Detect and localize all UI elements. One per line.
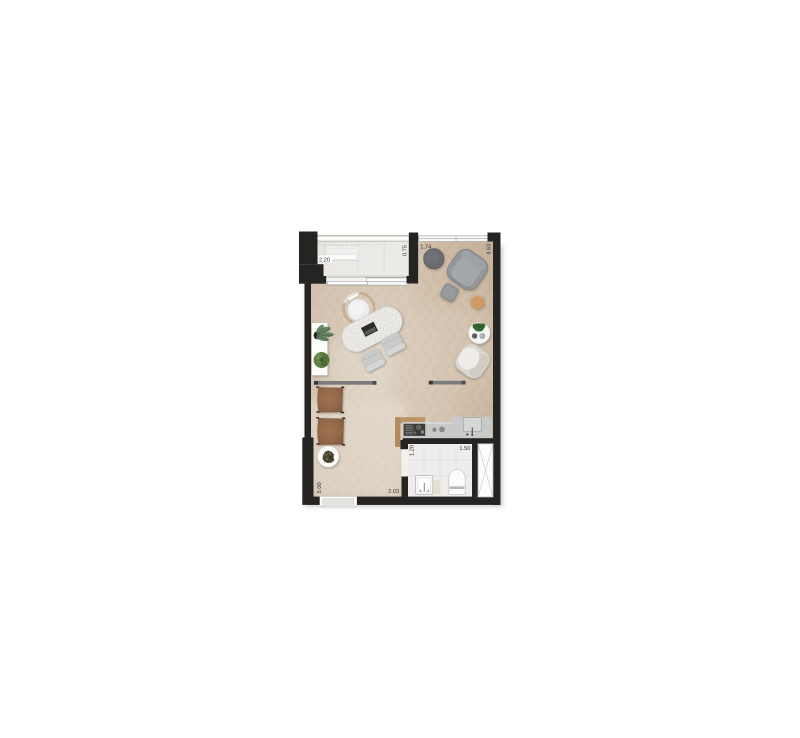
svg-text:5.00: 5.00	[317, 482, 323, 493]
svg-text:0.75: 0.75	[402, 245, 408, 256]
svg-text:2.03: 2.03	[388, 489, 399, 495]
svg-text:1.74: 1.74	[420, 245, 431, 251]
svg-text:1.20: 1.20	[410, 445, 416, 456]
svg-text:4.63: 4.63	[487, 244, 493, 255]
svg-text:1.50: 1.50	[459, 446, 470, 452]
svg-text:2.20: 2.20	[319, 257, 330, 263]
